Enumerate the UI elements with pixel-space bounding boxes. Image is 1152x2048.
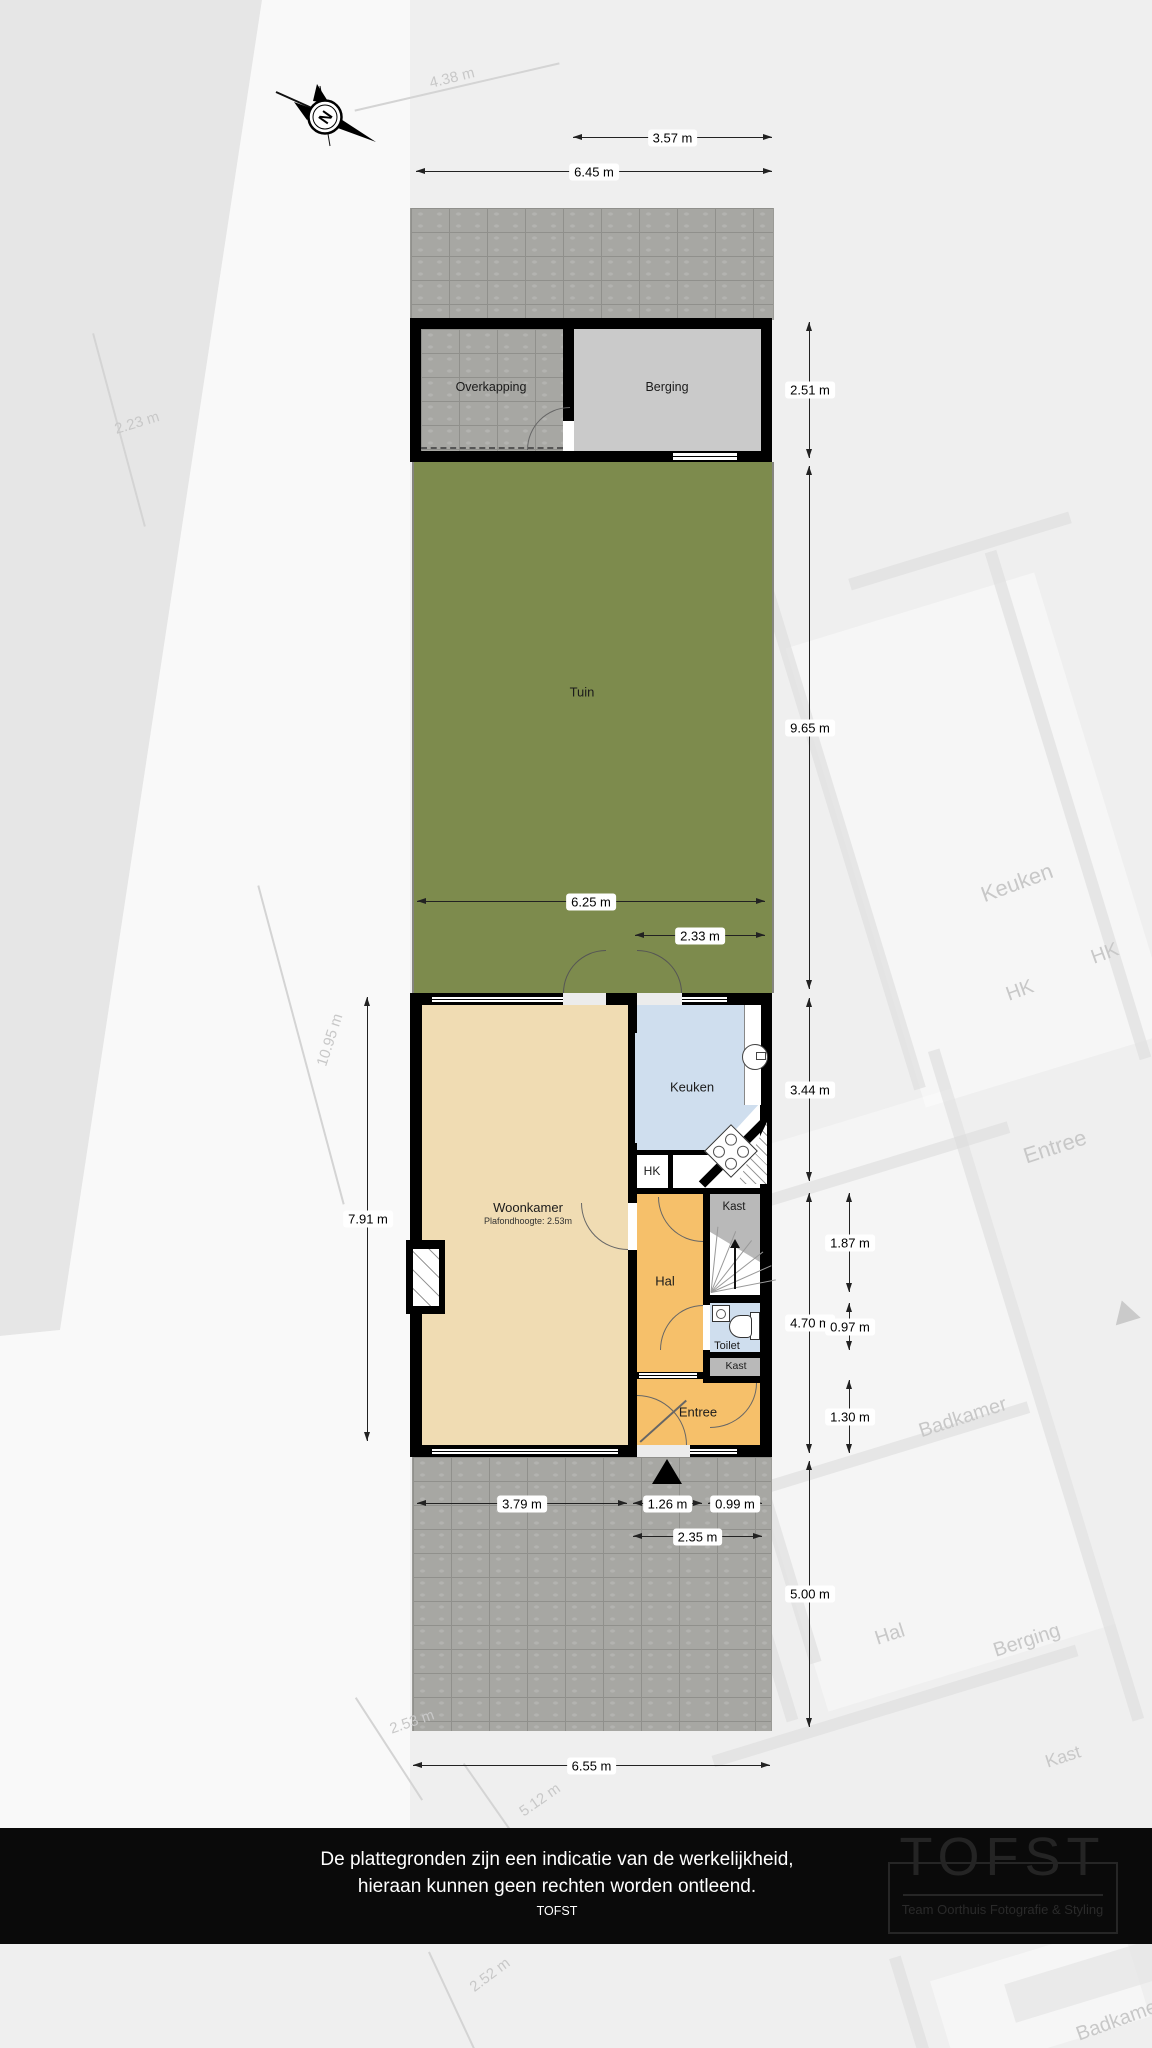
- dimension-7.91-m: 7.91 m: [367, 997, 369, 1441]
- disclaimer-line2: hieraan kunnen geen rechten worden ontle…: [257, 1873, 857, 1900]
- logo-subtitle: Team Oorthuis Fotografie & Styling: [885, 1902, 1120, 1917]
- door-gap-woonkamer-hal: [628, 1203, 637, 1250]
- dim-arrow-up: [806, 998, 812, 1007]
- dim-arrow-right: [693, 1500, 702, 1506]
- dim-arrow-right: [756, 932, 765, 938]
- dim-arrow-up: [364, 997, 370, 1006]
- dimension-1.30-m: 1.30 m: [849, 1380, 851, 1453]
- dim-label: 2.33 m: [675, 928, 725, 945]
- logo-word: TOFST: [885, 1826, 1120, 1888]
- dim-label: 9.65 m: [785, 719, 835, 736]
- label-kast-onder: Kast: [725, 1360, 746, 1372]
- wall-stub-top: [628, 1005, 637, 1033]
- label-berging: Berging: [645, 380, 688, 394]
- dim-arrow-down: [806, 1444, 812, 1453]
- dim-arrow-left: [413, 1762, 422, 1768]
- tofst-logo: TOFST Team Oorthuis Fotografie & Styling: [885, 1830, 1120, 1940]
- dim-arrow-up: [806, 322, 812, 331]
- stairs-arrow-head: [730, 1239, 740, 1248]
- window-front-entree: [690, 1447, 737, 1456]
- dim-label: 0.99 m: [710, 1496, 760, 1513]
- side-niche-window: [413, 1249, 439, 1306]
- dim-arrow-right: [763, 168, 772, 174]
- dim-label: 5.00 m: [785, 1586, 835, 1603]
- compass-icon: N: [268, 78, 388, 158]
- stairs-arrow-line: [734, 1247, 736, 1289]
- dim-arrow-left: [633, 1533, 642, 1539]
- dim-arrow-left: [417, 1500, 426, 1506]
- dim-arrow-down: [806, 1172, 812, 1181]
- dimension-2.35-m: 2.35 m: [633, 1536, 762, 1538]
- label-overkapping: Overkapping: [456, 380, 527, 394]
- dimension-3.79-m: 3.79 m: [417, 1503, 627, 1505]
- glass-partition-hal-entree: [639, 1372, 697, 1379]
- dimension-3.44-m: 3.44 m: [809, 998, 811, 1181]
- backdrop-label-entree: Entree: [1020, 1125, 1090, 1170]
- backdoor-opening-right: [637, 993, 682, 1005]
- toilet-bowl: [729, 1315, 752, 1338]
- dimension-1.26-m: 1.26 m: [633, 1503, 702, 1505]
- logo-rule: [903, 1894, 1103, 1896]
- dim-arrow-left: [416, 168, 425, 174]
- dimension-6.55-m: 6.55 m: [413, 1765, 770, 1767]
- dim-label: 7.91 m: [343, 1211, 393, 1228]
- dim-label: 2.51 m: [785, 382, 835, 399]
- dim-arrow-up: [846, 1193, 852, 1202]
- dim-arrow-right: [753, 1533, 762, 1539]
- dim-arrow-left: [633, 1500, 642, 1506]
- dim-arrow-down: [846, 1444, 852, 1453]
- wall-stairs-toilet: [703, 1295, 760, 1303]
- hob-burner: [723, 1131, 740, 1148]
- dim-arrow-left: [635, 932, 644, 938]
- wall-kast-entree: [703, 1376, 760, 1383]
- dim-arrow-up: [806, 1193, 812, 1202]
- backdrop-label-5.12-m: 5.12 m: [516, 1780, 563, 1820]
- dim-arrow-down: [806, 1718, 812, 1727]
- dim-arrow-up: [806, 1461, 812, 1470]
- dimension-2.51-m: 2.51 m: [809, 322, 811, 458]
- floorplan-page: 4.38 m2.23 mKeukenHKHKEntree10.95 mBadka…: [0, 0, 1152, 2048]
- dim-label: 3.44 m: [785, 1081, 835, 1098]
- dimension-2.33-m: 2.33 m: [635, 935, 765, 937]
- window-back-left: [432, 995, 563, 1004]
- dimension-0.97-m: 0.97 m: [849, 1303, 851, 1350]
- dim-label: 1.26 m: [643, 1496, 693, 1513]
- dimension-6.45-m: 6.45 m: [416, 171, 772, 173]
- woonkamer-ceiling-height: Plafondhoogte: 2.53m: [484, 1216, 572, 1226]
- dim-arrow-down: [846, 1341, 852, 1350]
- backdrop-wall: [889, 1956, 933, 2048]
- disclaimer-line3: TOFST: [257, 1903, 857, 1919]
- dim-label: 3.79 m: [497, 1496, 547, 1513]
- backdrop-entrance-arrow: [1109, 1297, 1140, 1326]
- dim-arrow-left: [573, 134, 582, 140]
- hob-burner: [710, 1143, 727, 1160]
- dim-arrow-right: [761, 1762, 770, 1768]
- tuin-area: [412, 462, 774, 993]
- dim-arrow-down: [806, 980, 812, 989]
- dim-arrow-down: [806, 449, 812, 458]
- label-keuken: Keuken: [670, 1080, 714, 1095]
- disclaimer: De plattegronden zijn een indicatie van …: [257, 1846, 857, 1919]
- dimension-3.57-m: 3.57 m: [573, 137, 772, 139]
- dimension-0.99-m: 0.99 m: [708, 1503, 762, 1505]
- label-toilet: Toilet: [714, 1340, 740, 1352]
- dim-arrow-right: [618, 1500, 627, 1506]
- hob-burner: [735, 1143, 752, 1160]
- dim-arrow-right: [756, 898, 765, 904]
- dim-label: 6.55 m: [567, 1758, 617, 1775]
- backdrop-wall: [848, 512, 1071, 591]
- dimension-5.00-m: 5.00 m: [809, 1461, 811, 1727]
- entrance-arrow: [652, 1459, 682, 1484]
- wall-toilet-kast: [703, 1352, 760, 1358]
- berging-window: [673, 451, 737, 462]
- backdrop-label-2.52-m: 2.52 m: [467, 1954, 514, 1995]
- wall-hk-right: [668, 1155, 673, 1188]
- backdrop-label-kast: Kast: [1043, 1741, 1084, 1772]
- disclaimer-line1: De plattegronden zijn een indicatie van …: [257, 1846, 857, 1873]
- dimension-9.65-m: 9.65 m: [809, 466, 811, 989]
- dim-arrow-down: [846, 1283, 852, 1292]
- dim-arrow-right: [763, 134, 772, 140]
- dim-label: 6.45 m: [569, 164, 619, 181]
- window-back-right: [682, 995, 727, 1004]
- dim-arrow-left: [417, 898, 426, 904]
- dim-label: 2.35 m: [673, 1529, 723, 1546]
- toilet-basin-bowl: [716, 1309, 726, 1319]
- label-hal: Hal: [655, 1274, 675, 1289]
- dim-arrow-up: [806, 466, 812, 475]
- backdrop-dim-line: [428, 1952, 483, 2048]
- dim-label: 6.25 m: [566, 894, 616, 911]
- dimension-6.25-m: 6.25 m: [417, 901, 765, 903]
- label-woonkamer: Woonkamer Plafondhoogte: 2.53m: [484, 1200, 572, 1226]
- dimension-4.70-m: 4.70 m: [809, 1193, 811, 1453]
- label-hk: HK: [644, 1164, 661, 1178]
- dim-label: 1.30 m: [825, 1408, 875, 1425]
- door-gap-toilet: [703, 1305, 710, 1350]
- dim-arrow-up: [846, 1303, 852, 1312]
- dim-label: 3.57 m: [648, 130, 698, 147]
- wall-under-hk-row: [628, 1188, 760, 1194]
- window-front-woonkamer: [432, 1447, 618, 1456]
- toilet-basin: [712, 1305, 730, 1322]
- dim-arrow-down: [364, 1432, 370, 1441]
- hob-burner: [723, 1155, 740, 1172]
- dim-label: 1.87 m: [825, 1234, 875, 1251]
- woonkamer-name: Woonkamer: [493, 1200, 563, 1215]
- paving-back: [410, 208, 774, 320]
- label-tuin: Tuin: [570, 685, 595, 700]
- dim-label: 0.97 m: [825, 1318, 875, 1335]
- backdoor-opening-left: [563, 993, 606, 1005]
- frontdoor-opening: [637, 1445, 690, 1457]
- label-kast-boven: Kast: [722, 1201, 745, 1213]
- footer-band: De plattegronden zijn een indicatie van …: [0, 1828, 1152, 1944]
- dim-arrow-up: [846, 1380, 852, 1389]
- dimension-1.87-m: 1.87 m: [849, 1193, 851, 1292]
- kitchen-faucet: [756, 1052, 766, 1060]
